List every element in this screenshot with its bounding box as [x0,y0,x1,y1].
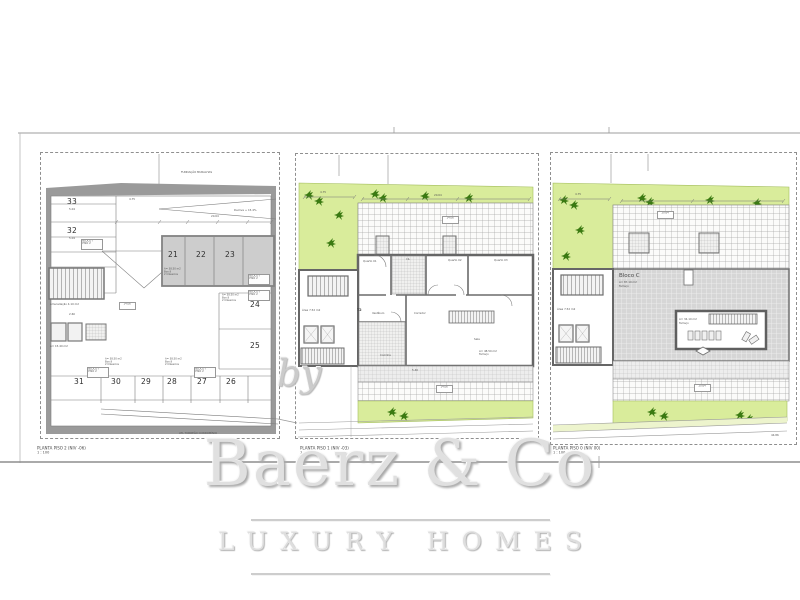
block-tag-box: BLOCO IPISO 2 [248,274,270,285]
plan-basement-parking: FUNDAÇÃO MURALHAS 33 32 21 22 23 24 25 3… [40,152,280,439]
garage-linework [41,153,279,438]
watermark-rule-bottom [251,573,550,575]
dim-label: 20.64 [434,194,442,197]
dim-box: 20.64 [694,384,711,392]
bloco-area-note: A= 87.10 m2 [619,281,637,284]
lower-terrace [613,361,789,401]
parking-space-28: 28 [167,378,177,386]
dim-label: 2.60 [69,313,75,316]
courtyard-note: A= 34.10 m2 [679,318,697,321]
plan-roof-terrace: Bloco C A= 87.10 m2 Terraço A= 34.10 m2 … [550,152,797,445]
core-note: A= 15.40 m2 [50,345,68,348]
terrace-note: Terraço [479,353,489,356]
watermark-rule-top [251,519,550,521]
dim-label: 4.75 [129,198,135,201]
area-note: Área 7.52 m2 [302,309,320,312]
dim-label: 5.04 [69,208,75,211]
parking-space-25: 25 [250,342,260,350]
parking-space-30: 30 [111,378,121,386]
block-tag-box: BLOCO IPISO 2 [81,239,103,250]
watermark-brand: Baerz & Co [186,428,614,500]
dim-label: 4.75 [320,191,326,194]
garden-strip [358,401,533,423]
bloco-use-note: Terraço [619,285,629,288]
stair-elevator-core [553,269,613,365]
watermark-by: by [277,352,322,395]
parking-space-33: 33 [67,198,77,206]
parking-space-23: 23 [225,251,235,259]
parking-space-32: 32 [67,227,77,235]
parking-space-22: 22 [196,251,206,259]
parking-space-21: 21 [168,251,178,259]
dim-box: 14.06 [119,302,136,310]
room-label-quarto3: Quarto 03 [494,259,508,262]
parking-space-26: 26 [226,378,236,386]
dim-label: 5.04 [69,237,75,240]
parking-space-31: 31 [74,378,84,386]
room-label-sala: Sala [474,338,480,341]
roof-linework [551,153,796,444]
garage-partitions [51,196,278,426]
stall-annotation: A= 38.50 m2Box 92 Clássicos [164,268,181,276]
stall-annotation: A= 38.50 m2Box 92 Clássicos [165,358,182,366]
block-tag-box: BLOCO IPISO 2 [248,290,270,301]
parking-space-27: 27 [197,378,207,386]
dim-label: 44.86 [771,434,779,437]
stall-annotation: A= 38.50 m2Box 92 Clássicos [222,294,239,302]
terrace-deck [613,269,789,361]
area-note: Área 7.52 m2 [557,308,575,311]
bloco-label: Bloco C [619,273,640,279]
garage-top-note: FUNDAÇÃO MURALHAS [181,171,212,174]
room-label-vestibulo: Vestíbulo [372,312,384,315]
roof-grid [613,205,789,269]
dim-label: 20.64 [211,215,219,218]
watermark-tagline: LUXURY HOMES [186,527,614,556]
dim-label: 5.40 [412,369,418,372]
core-note: Arrecadação 4.10 m2 [50,303,79,306]
block-tag-box: BLOCO IPISO 2 [87,367,109,378]
plan-apartment-floor: T2 Quarto 01 I.S. Quarto 02 Quarto 03 Ve… [295,153,539,439]
courtyard-note: Terraço [679,322,689,325]
room-label-is: I.S. [406,258,410,261]
stall-annotation: A= 38.50 m2Box 92 Clássicos [105,358,122,366]
garage-walls [46,183,276,434]
plan-sheet: FUNDAÇÃO MURALHAS 33 32 21 22 23 24 25 3… [0,0,800,600]
ramp-note: Declive + 15.4% [234,209,257,212]
room-label-corredor: Corredor [414,312,426,315]
block-tag-box: BLOCO IPISO 2 [194,367,216,378]
parking-space-29: 29 [141,378,151,386]
room-label-cozinha: Cozinha [380,354,391,357]
dim-box: 14.06 [442,216,459,224]
dim-box: 20.64 [657,211,674,219]
dim-box: 14.06 [436,385,453,393]
room-label-quarto2: Quarto 02 [448,259,462,262]
parking-space-24: 24 [250,301,260,309]
roof-terrace-grid [358,203,533,255]
room-label-quarto1: Quarto 01 [363,260,377,263]
dim-label: 4.75 [575,193,581,196]
apartment-linework [296,154,538,438]
lower-terrace [358,366,533,401]
unit-type-label: T2 [357,309,362,312]
plan-title-basement: PLANTA PISO 2 (NIV -06)1 : 100 [37,446,135,463]
